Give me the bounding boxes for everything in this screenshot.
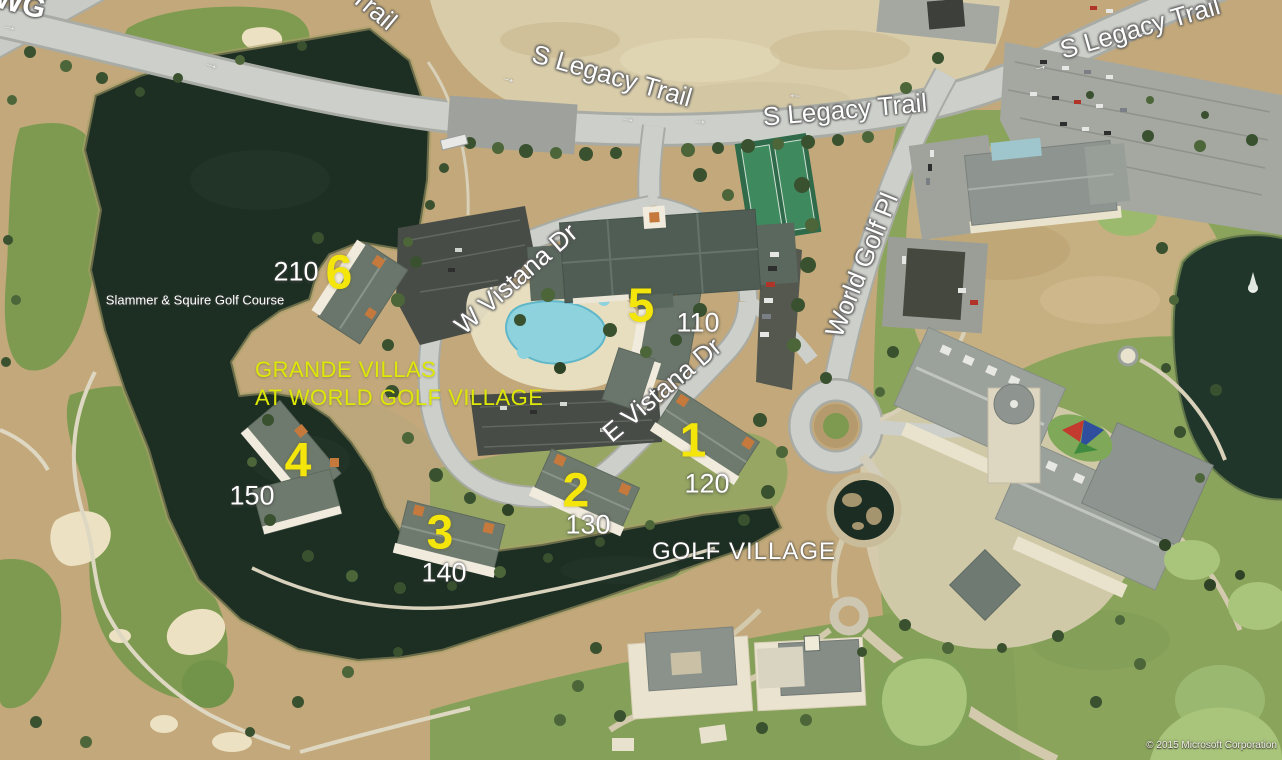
world-map-pond	[830, 476, 898, 544]
gazebo	[1119, 347, 1137, 365]
roundabout	[800, 390, 872, 462]
aerial-map: WG S Legacy Trail S Legacy Trail S Legac…	[0, 0, 1282, 760]
maintenance-building	[903, 248, 966, 320]
aerial-imagery	[0, 0, 1282, 760]
